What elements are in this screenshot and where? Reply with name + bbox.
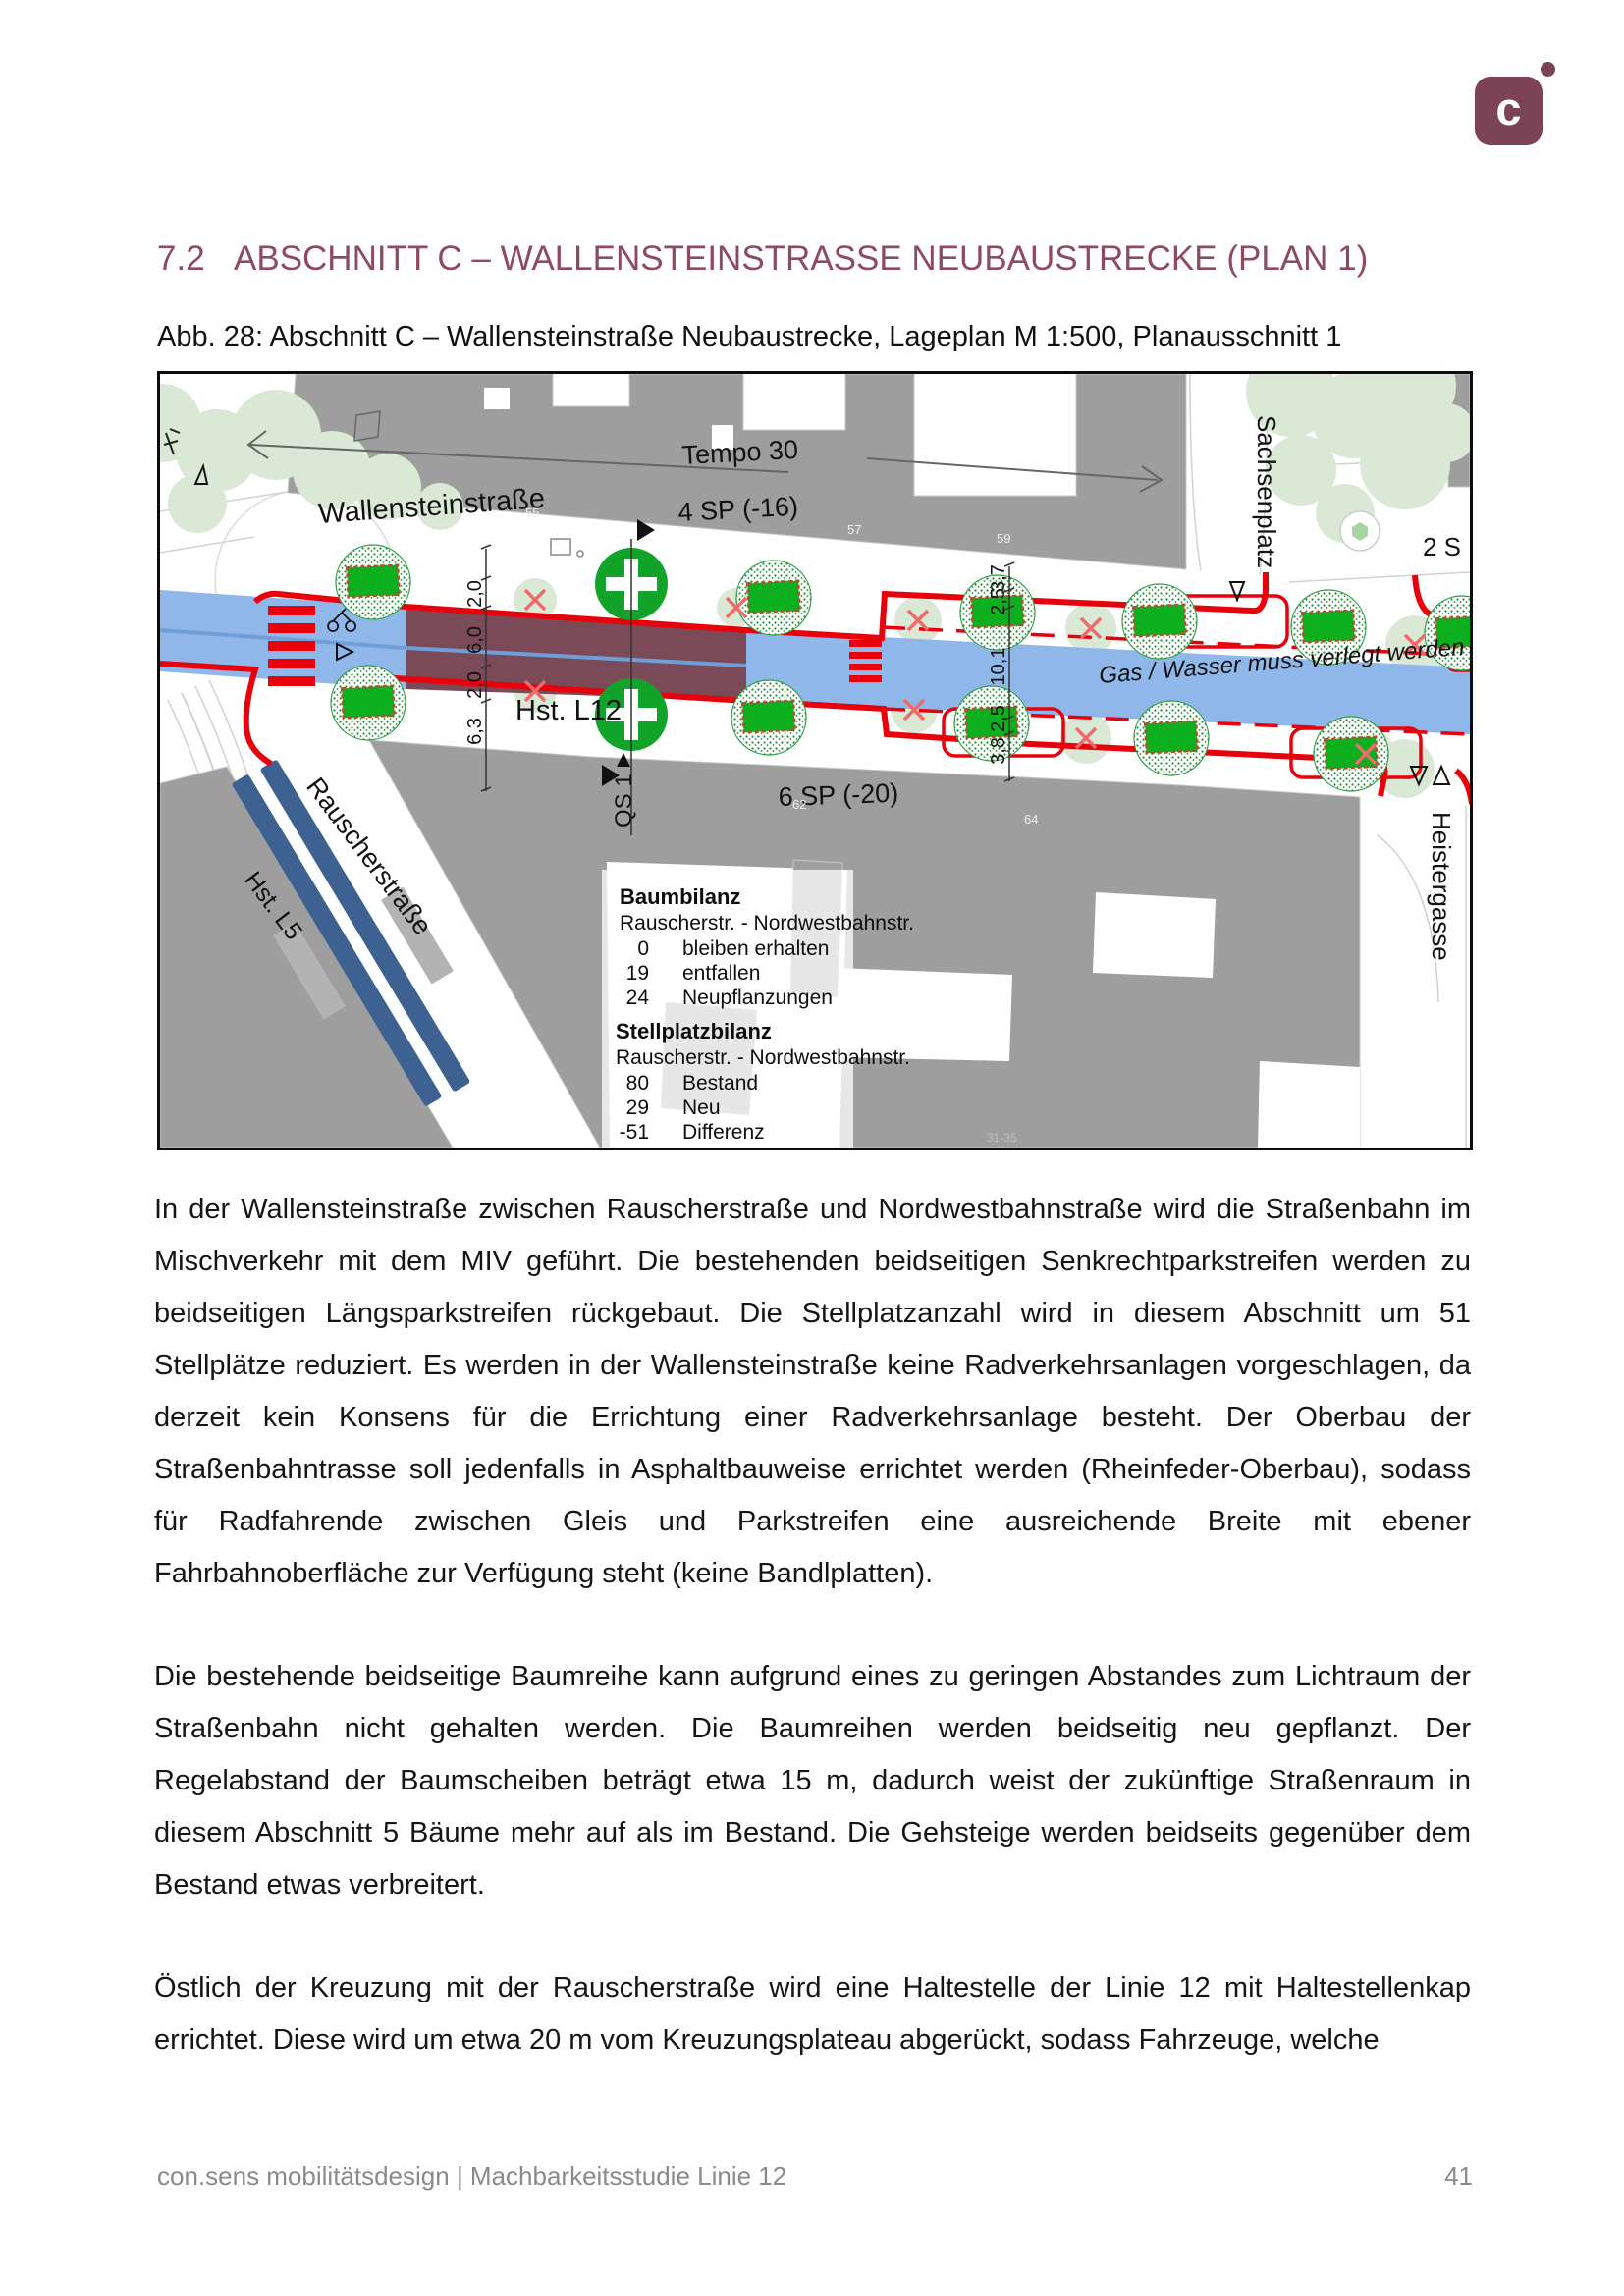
logo-dot-icon <box>1541 62 1555 77</box>
footer-left: con.sens mobilitätsdesign | Machbarkeits… <box>157 2162 786 2192</box>
dim-label: 3,7 <box>988 564 1009 592</box>
figure-caption: Abb. 28: Abschnitt C – Wallensteinstraße… <box>157 321 1341 353</box>
dim-label: 2,0 <box>464 671 486 699</box>
dim-label: 2,0 <box>464 580 486 608</box>
street-label-heistergasse: Heistergasse <box>1427 812 1456 961</box>
baumbilanz-subtitle: Rauscherstr. - Nordwestbahnstr. <box>620 912 914 934</box>
baumbilanz-row-n: 0 <box>637 937 649 960</box>
house-number: 55 <box>525 506 539 520</box>
logo-letter: c <box>1495 81 1521 135</box>
body-text: In der Wallensteinstraße zwischen Rausch… <box>154 1184 1471 2117</box>
consens-logo: c <box>1475 77 1543 145</box>
tempo-30-label: Tempo 30 <box>681 435 799 470</box>
baumbilanz-row-n: 19 <box>626 962 649 985</box>
dim-label: 2,5 <box>988 588 1009 615</box>
baumbilanz-row-n: 24 <box>626 987 650 1009</box>
body-paragraph: Östlich der Kreuzung mit der Rauscherstr… <box>154 1962 1471 2066</box>
qs1-section-label: QS 1 <box>611 774 637 828</box>
body-paragraph: In der Wallensteinstraße zwischen Rausch… <box>154 1184 1471 1600</box>
house-number: 64 <box>1024 812 1038 827</box>
dim-label: 6,0 <box>464 626 486 654</box>
dim-label: 6,3 <box>464 718 486 745</box>
stellplatzbilanz-title: Stellplatzbilanz <box>616 1019 772 1043</box>
stellplatzbilanz-row-n: -51 <box>620 1121 649 1144</box>
baumbilanz-row-t: Neupflanzungen <box>682 987 833 1009</box>
parking-north-label: 4 SP (-16) <box>677 492 799 527</box>
page-footer: con.sens mobilitätsdesign | Machbarkeits… <box>157 2162 1473 2192</box>
stellplatzbilanz-row-t: Neu <box>682 1096 721 1119</box>
section-title: ABSCHNITT C – WALLENSTEINSTRASSE NEUBAUS… <box>234 240 1368 278</box>
house-number: 57 <box>847 522 861 537</box>
stellplatzbilanz-row-t: Differenz <box>682 1121 765 1144</box>
stellplatzbilanz-row-n: 80 <box>626 1072 649 1095</box>
section-heading: 7.2ABSCHNITT C – WALLENSTEINSTRASSE NEUB… <box>157 240 1478 279</box>
baumbilanz-row-t: bleiben erhalten <box>682 937 829 960</box>
body-paragraph: Die bestehende beidseitige Baumreihe kan… <box>154 1651 1471 1911</box>
dim-label: 2,5 <box>988 705 1009 732</box>
baumbilanz-title: Baumbilanz <box>620 884 740 909</box>
dim-label: 10,1 <box>988 648 1009 686</box>
stellplatzbilanz-row-n: 29 <box>626 1096 649 1119</box>
house-number: 31-35 <box>987 1131 1017 1145</box>
stellplatzbilanz-row-t: Bestand <box>682 1072 758 1095</box>
section-number: 7.2 <box>157 240 234 279</box>
dim-label: 3,8 <box>988 737 1009 765</box>
clipped-east-label: 2 S <box>1423 532 1461 561</box>
stellplatzbilanz-subtitle: Rauscherstr. - Nordwestbahnstr. <box>616 1046 910 1069</box>
street-label-sachsenplatz: Sachsenplatz <box>1252 415 1281 568</box>
house-number: 62 <box>792 797 806 812</box>
baumbilanz-row-t: entfallen <box>682 962 760 985</box>
stop-l12-label: Hst. L12 <box>515 695 622 726</box>
house-number: 59 <box>997 531 1010 546</box>
site-plan-figure: Wallensteinstraße Tempo 30 4 SP (-16) 6 … <box>157 371 1473 1150</box>
page-number: 41 <box>1444 2162 1473 2192</box>
